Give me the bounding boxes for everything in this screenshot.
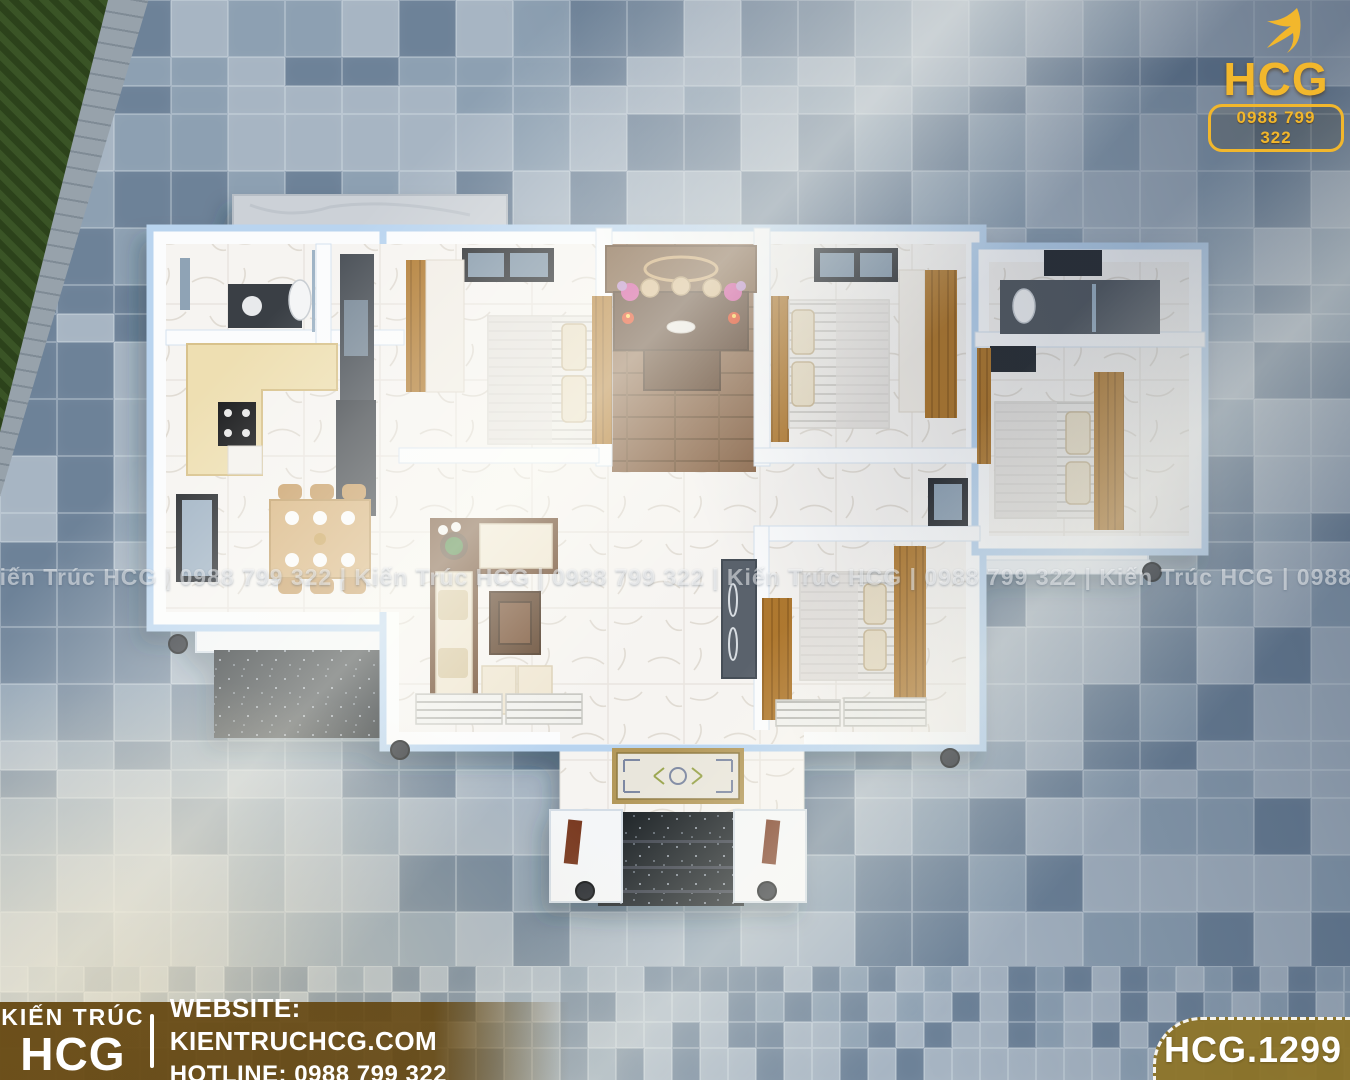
brand-bottom: HCG	[0, 1031, 146, 1077]
watermark-strip: Kiến Trúc HCG | 0988 799 322 | Kiến Trúc…	[0, 564, 1350, 594]
model-code-badge: HCG.1299	[1153, 1017, 1350, 1080]
logo-text: HCG	[1208, 59, 1344, 100]
footer-info-bar: KIẾN TRÚC HCG WEBSITE: KIENTRUCHCG.COM H…	[0, 1002, 570, 1080]
logo-phone-badge: 0988 799 322	[1208, 104, 1344, 152]
brand-top: KIẾN TRÚC	[0, 1006, 146, 1029]
website-label: WEBSITE:	[170, 993, 301, 1023]
hotline-label: HOTLINE:	[170, 1061, 287, 1080]
footer-divider	[150, 1014, 154, 1068]
model-code: HCG.1299	[1164, 1029, 1342, 1071]
website-value: KIENTRUCHCG.COM	[170, 1026, 438, 1056]
hotline-value: 0988 799 322	[294, 1061, 447, 1080]
eagle-icon	[1241, 6, 1311, 54]
footer-brand: KIẾN TRÚC HCG	[0, 1006, 146, 1077]
porch-medallion	[612, 748, 744, 804]
footer-contact: WEBSITE: KIENTRUCHCG.COM HOTLINE: 0988 7…	[170, 992, 570, 1080]
architectural-render: Kiến Trúc HCG | 0988 799 322 | Kiến Trúc…	[0, 0, 1350, 1080]
house-floorplan	[0, 0, 1350, 1080]
hcg-logo: HCG 0988 799 322	[1208, 6, 1344, 152]
